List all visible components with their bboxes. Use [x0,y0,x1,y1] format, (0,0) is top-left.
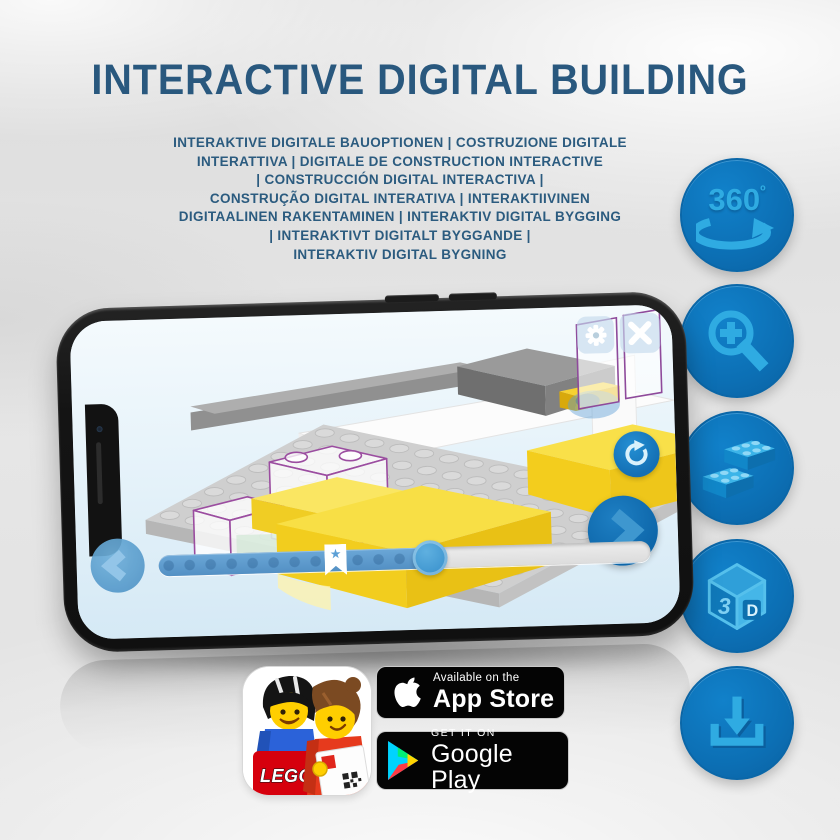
multilingual-subtitle: INTERAKTIVE DIGITALE BAUOPTIONEN | COSTR… [90,134,710,264]
gear-icon [581,320,610,349]
minifigures-illustration: LEGO [243,667,371,795]
close-button[interactable] [619,312,660,353]
360-label: 360º [682,182,792,218]
rotate-icon [621,439,652,470]
chevron-left-icon [90,538,146,594]
volume-button [385,294,439,303]
front-camera [97,426,103,432]
subtitle-line: CONSTRUÇÃO DIGITAL INTERATIVA | INTERAKT… [90,190,710,209]
lego-bricks-icon [693,424,781,512]
3d-cube-icon: 3 D [694,553,780,639]
close-icon [627,320,654,347]
feature-360-button[interactable]: 360º [680,158,794,272]
phone-mockup: ★ [55,291,695,654]
app-store-title: App Store [433,686,554,712]
settings-button[interactable] [576,316,614,354]
subtitle-line: INTERATTIVA | DIGITALE DE CONSTRUCTION I… [90,153,710,172]
phone-screen: ★ [69,304,680,640]
360-rotation-arrow-icon [696,216,782,256]
promo-canvas: INTERACTIVE DIGITAL BUILDING INTERAKTIVE… [0,0,840,840]
google-play-badge[interactable]: GET IT ON Google Play [377,732,568,789]
subtitle-line: | INTERAKTIVT DIGITALT BYGGANDE | [90,227,710,246]
app-store-badge[interactable]: Available on the App Store [377,667,564,718]
page-title: INTERACTIVE DIGITAL BUILDING [34,56,807,105]
phone-reflection [59,643,691,754]
subtitle-line: INTERAKTIV DIGITAL BYGNING [90,246,710,265]
app-store-tagline: Available on the [433,672,554,684]
subtitle-line: INTERAKTIVE DIGITALE BAUOPTIONEN | COSTR… [90,134,710,153]
google-play-icon [388,741,420,780]
cube-face-d: D [747,602,759,620]
feature-download-button[interactable] [680,666,794,780]
download-icon [696,682,778,764]
google-play-tagline: GET IT ON [431,728,568,739]
previous-step-button[interactable] [90,538,146,594]
lego-app-icon[interactable]: LEGO [243,667,371,795]
subtitle-line: DIGITAALINEN RAKENTAMINEN | INTERAKTIV D… [90,208,710,227]
google-play-title: Google Play [431,741,568,794]
volume-button [449,292,497,300]
cube-face-3: 3 [718,593,731,619]
feature-3d-button[interactable]: 3 D [680,539,794,653]
feature-bricks-button[interactable] [680,411,794,525]
lego-build-scene [69,304,680,640]
feature-zoom-button[interactable] [680,284,794,398]
speaker-slit [96,442,103,504]
apple-icon [389,673,422,713]
zoom-in-icon [698,302,776,380]
subtitle-line: | CONSTRUCCIÓN DIGITAL INTERACTIVA | [90,171,710,190]
phone-notch [85,404,122,557]
